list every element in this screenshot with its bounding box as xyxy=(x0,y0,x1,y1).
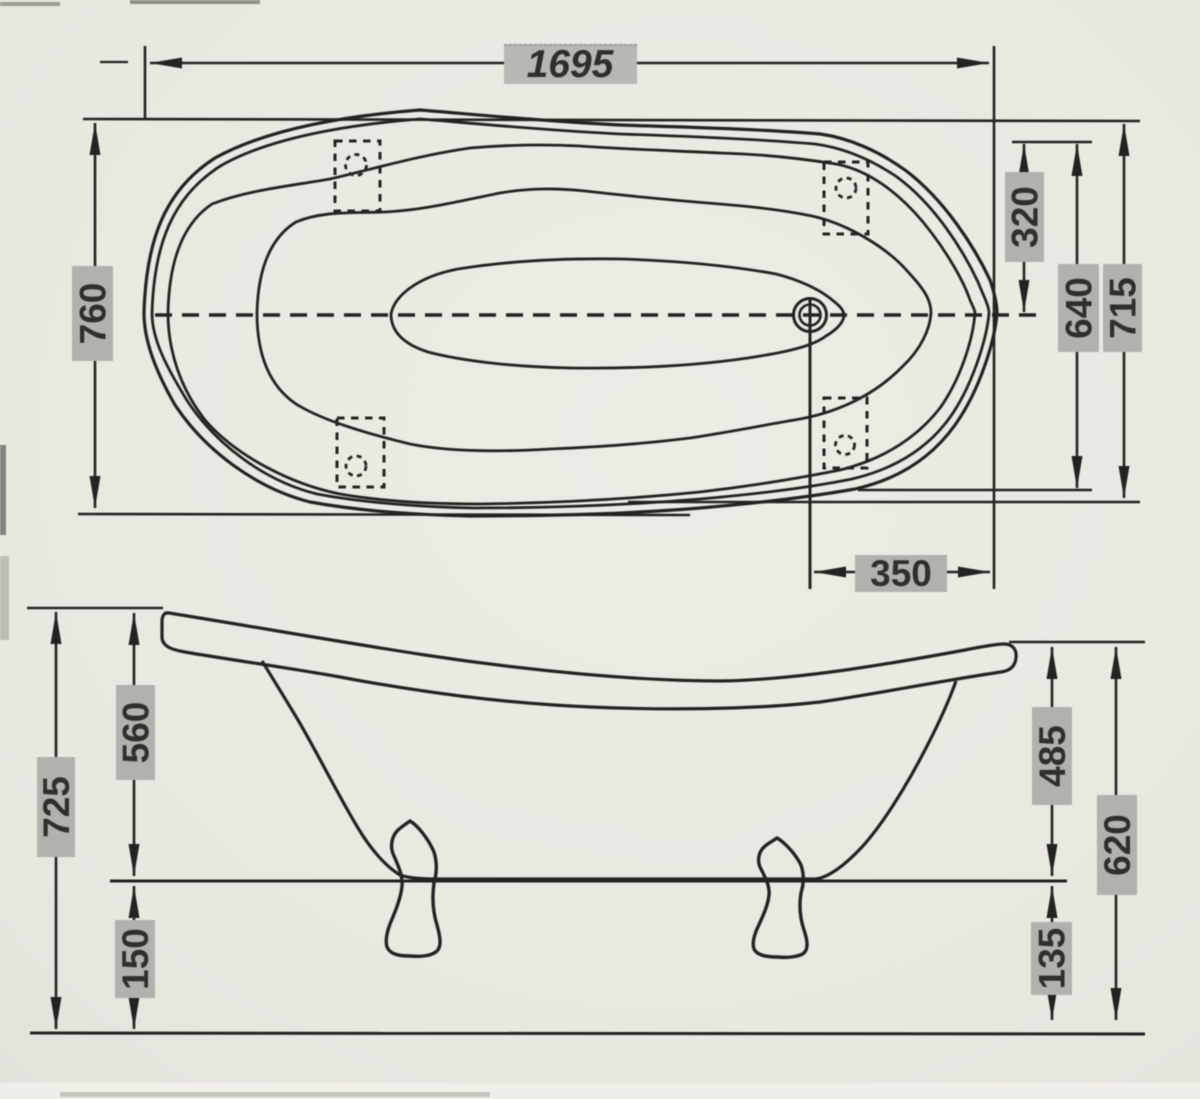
svg-text:135: 135 xyxy=(1032,928,1073,990)
svg-text:640: 640 xyxy=(1059,277,1100,339)
svg-text:150: 150 xyxy=(115,928,156,990)
svg-text:760: 760 xyxy=(73,283,114,345)
svg-text:620: 620 xyxy=(1097,814,1138,876)
svg-text:1695: 1695 xyxy=(527,43,615,86)
svg-text:725: 725 xyxy=(36,776,77,838)
svg-text:560: 560 xyxy=(116,702,157,764)
svg-text:350: 350 xyxy=(870,553,932,594)
svg-text:320: 320 xyxy=(1005,186,1046,248)
svg-text:715: 715 xyxy=(1103,277,1144,339)
svg-text:485: 485 xyxy=(1032,725,1073,787)
